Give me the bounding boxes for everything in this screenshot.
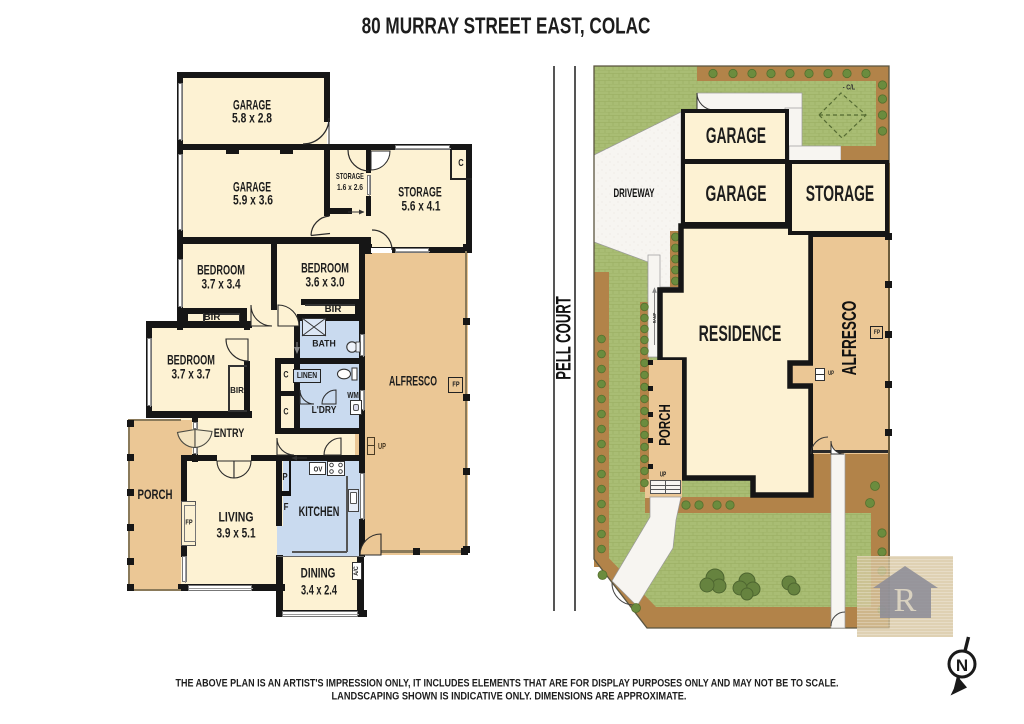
svg-text:R: R (894, 582, 917, 619)
svg-text:N: N (956, 656, 968, 675)
